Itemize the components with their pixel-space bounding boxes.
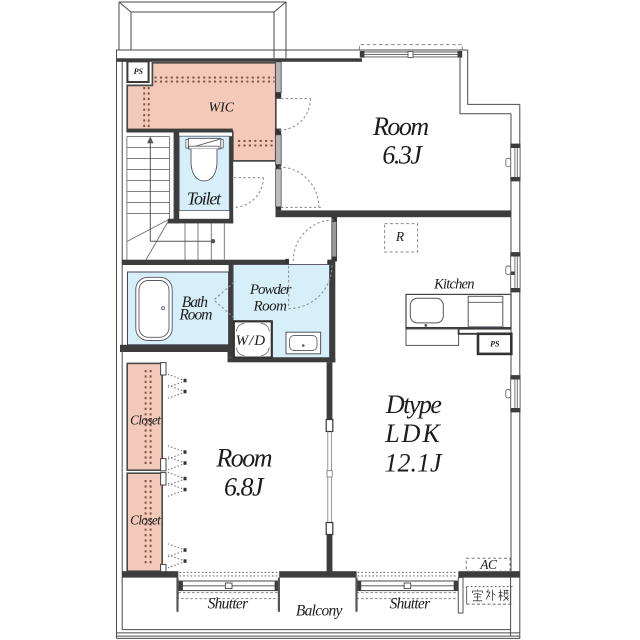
svg-text:AC: AC (479, 557, 498, 572)
svg-text:Balcony: Balcony (296, 603, 343, 620)
svg-text:Powder: Powder (249, 282, 292, 298)
svg-text:Closet: Closet (130, 512, 161, 527)
svg-text:PS: PS (134, 67, 144, 76)
svg-text:12.1J: 12.1J (384, 449, 443, 478)
svg-text:Toilet: Toilet (187, 188, 222, 208)
svg-text:6.3J: 6.3J (382, 140, 423, 169)
svg-text:Dtype: Dtype (385, 390, 442, 419)
svg-text:Room: Room (215, 443, 271, 472)
svg-text:R: R (395, 229, 405, 244)
svg-text:Closet: Closet (130, 412, 161, 427)
svg-text:6.8J: 6.8J (224, 473, 265, 502)
svg-text:Shutter: Shutter (208, 596, 250, 613)
svg-text:Room: Room (372, 112, 428, 141)
svg-text:Room: Room (253, 298, 288, 314)
svg-text:Shutter: Shutter (390, 596, 432, 613)
svg-text:WIC: WIC (208, 101, 234, 116)
svg-text:Room: Room (178, 307, 212, 324)
svg-text:LDK: LDK (384, 419, 442, 448)
svg-text:PS: PS (490, 339, 500, 348)
svg-text:W/D: W/D (236, 333, 267, 349)
svg-text:Kitchen: Kitchen (433, 276, 474, 292)
